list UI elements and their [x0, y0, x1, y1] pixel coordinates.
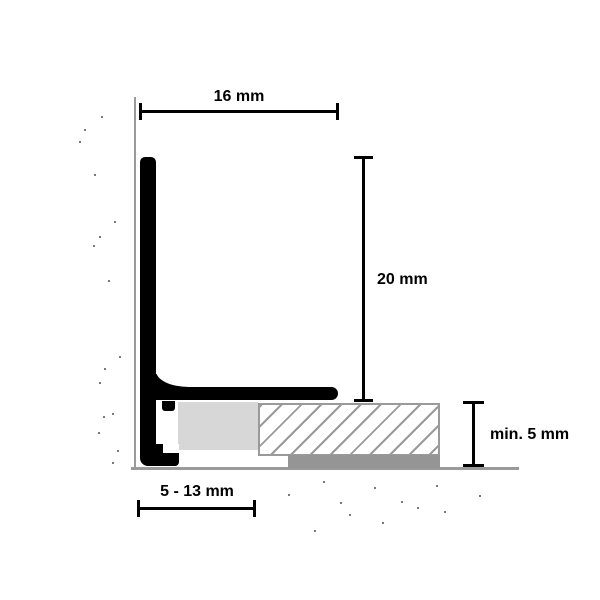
dim-tick: [463, 401, 484, 404]
speckle-dot: [101, 116, 103, 118]
speckle-dot: [288, 494, 290, 496]
profile-top-arm: [150, 387, 338, 400]
speckle-dot: [114, 221, 116, 223]
dim-tick: [354, 399, 373, 402]
dim-line-min5mm: [472, 402, 475, 467]
dim-line-16mm: [140, 110, 338, 113]
dim-label-16mm: 16 mm: [140, 88, 338, 106]
dim-tick: [253, 500, 256, 517]
dim-line-5-13mm: [138, 507, 256, 510]
speckle-dot: [79, 141, 81, 143]
dim-tick: [354, 156, 373, 159]
speckle-dot: [117, 450, 119, 452]
wall-line: [134, 97, 136, 470]
speckle-dot: [349, 514, 351, 516]
speckle-dot: [314, 530, 316, 532]
dim-label-min5mm: min. 5 mm: [490, 426, 569, 444]
speckle-dot: [417, 507, 419, 509]
dim-line-20mm: [362, 157, 365, 402]
speckle-dot: [103, 416, 105, 418]
tile-hatched-section: [258, 403, 440, 456]
speckle-dot: [108, 280, 110, 282]
speckle-dot: [382, 522, 384, 524]
speckle-dot: [119, 356, 121, 358]
adhesive-layer: [288, 455, 440, 468]
speckle-dot: [84, 129, 86, 131]
speckle-dot: [104, 368, 106, 370]
speckle-dot: [401, 501, 403, 503]
speckle-dot: [374, 487, 376, 489]
dim-label-5-13mm: 5 - 13 mm: [138, 483, 256, 501]
speckle-dot: [99, 236, 101, 238]
profile-clip-tooth: [162, 401, 175, 411]
speckle-dot: [479, 495, 481, 497]
dim-label-20mm: 20 mm: [377, 271, 428, 289]
speckle-dot: [98, 432, 100, 434]
speckle-dot: [340, 502, 342, 504]
profile-installation-diagram: 16 mm 20 mm min. 5 mm 5 - 13 mm: [0, 0, 600, 600]
profile-upright: [140, 157, 156, 466]
speckle-dot: [99, 382, 101, 384]
speckle-dot: [112, 413, 114, 415]
speckle-dot: [93, 245, 95, 247]
speckle-dot: [436, 485, 438, 487]
dim-tick: [137, 500, 140, 517]
dim-tick: [463, 464, 484, 467]
speckle-dot: [444, 511, 446, 513]
speckle-dot: [323, 481, 325, 483]
speckle-dot: [112, 462, 114, 464]
speckle-dot: [94, 174, 96, 176]
profile-foot-notch: [163, 444, 179, 453]
